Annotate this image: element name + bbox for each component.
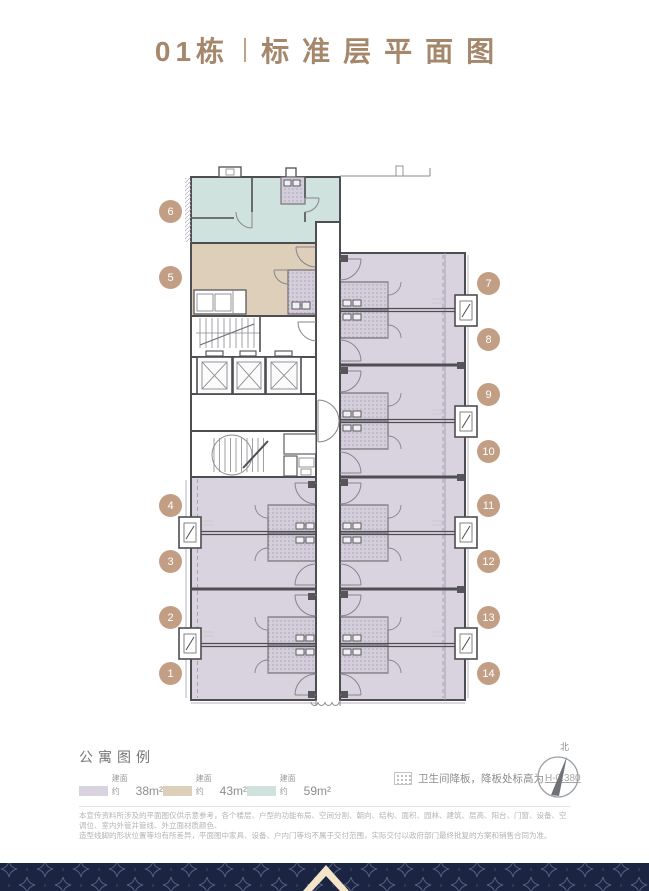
floor-plan: 1 2 3 4 5 6 7 8 9 10 11 12 13 14 <box>155 160 515 740</box>
unit-number-badge: 3 <box>159 550 182 573</box>
legend-prefix: 建面约 <box>280 772 303 798</box>
legend-items: 建面约 38m² 建面约 43m² 建面约 59m² <box>79 772 331 798</box>
disclaimer-line-1: 本宣传资料所涉及的平面图仅供示意参考，各个楼层、户型的功能布局、空间分割、朝向、… <box>79 811 571 831</box>
bathroom-drop-swatch <box>394 772 412 785</box>
unit-number-badge: 7 <box>477 272 500 295</box>
unit-number-badge: 11 <box>477 494 500 517</box>
legend-swatch-38 <box>79 786 108 796</box>
compass-icon <box>534 744 582 800</box>
unit-number-badge: 9 <box>477 383 500 406</box>
legend-item-43: 建面约 43m² <box>163 772 247 798</box>
unit-number-badge: 5 <box>159 266 182 289</box>
unit-number-badge: 13 <box>477 606 500 629</box>
unit-number-badge: 12 <box>477 550 500 573</box>
compass-north-label: 北 <box>560 740 569 753</box>
legend-prefix: 建面约 <box>112 772 135 798</box>
bathroom-drop-text: 卫生间降板，降板处标高为 <box>418 771 544 786</box>
legend-heading: 公寓图例 <box>79 747 155 767</box>
legend-item-59: 建面约 59m² <box>247 772 331 798</box>
unit-number-badge: 8 <box>477 328 500 351</box>
compass <box>534 744 582 805</box>
floor-plan-drawing <box>155 160 515 740</box>
unit-number-badge: 4 <box>159 494 182 517</box>
plan-name: 标准层平面图 <box>261 30 507 70</box>
legend-area: 59m² <box>304 785 331 798</box>
footer-band <box>0 863 649 891</box>
footer-pattern <box>0 863 649 891</box>
unit-number-badge: 14 <box>477 662 500 685</box>
legend-prefix: 建面约 <box>196 772 219 798</box>
legend-swatch-59 <box>247 786 276 796</box>
floorplan-poster: 01栋 标准层平面图 <box>0 0 649 891</box>
unit-number-badge: 1 <box>159 662 182 685</box>
legend-area: 43m² <box>220 785 247 798</box>
legend-area: 38m² <box>136 785 163 798</box>
unit-number-badge: 2 <box>159 606 182 629</box>
unit-number-badge: 10 <box>477 440 500 463</box>
page-title: 01栋 标准层平面图 <box>0 30 649 70</box>
legend-swatch-43 <box>163 786 192 796</box>
unit-number-badge: 6 <box>159 200 182 223</box>
disclaimer: 本宣传资料所涉及的平面图仅供示意参考，各个楼层、户型的功能布局、空间分割、朝向、… <box>79 811 571 841</box>
building-number: 01栋 <box>155 30 229 70</box>
title-divider <box>244 38 246 62</box>
legend-item-38: 建面约 38m² <box>79 772 163 798</box>
legend-divider <box>79 806 570 807</box>
disclaimer-line-2: 造型线脚的形状位置等均有所差异，平面图中家具、设备、户内门等均不属于交付范围，实… <box>79 831 571 841</box>
